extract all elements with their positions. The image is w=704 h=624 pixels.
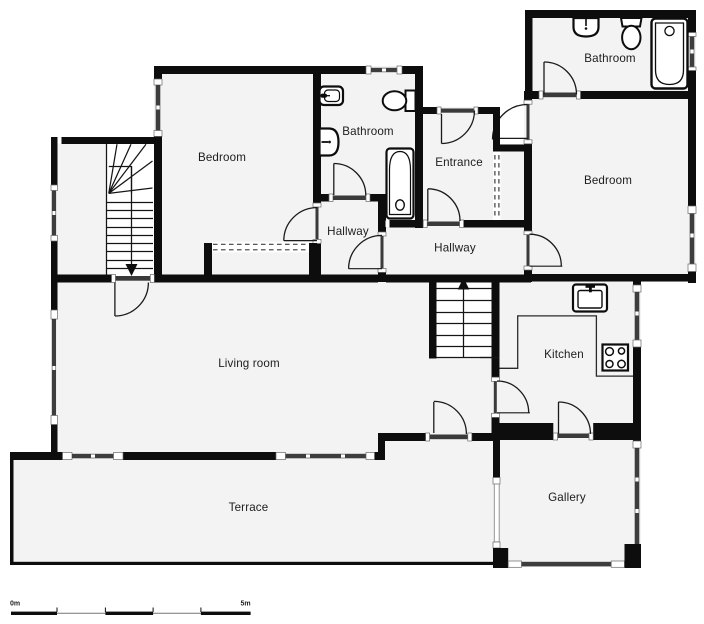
- svg-text:Bedroom: Bedroom: [198, 151, 246, 164]
- svg-text:Entrance: Entrance: [435, 156, 483, 169]
- svg-text:Bathroom: Bathroom: [342, 125, 393, 138]
- svg-text:Hallway: Hallway: [327, 225, 369, 238]
- svg-text:Bathroom: Bathroom: [584, 52, 635, 65]
- svg-text:Kitchen: Kitchen: [544, 348, 584, 361]
- svg-text:Bedroom: Bedroom: [584, 174, 632, 187]
- svg-text:0m: 0m: [10, 601, 20, 608]
- svg-text:Living room: Living room: [218, 357, 280, 370]
- svg-text:Hallway: Hallway: [434, 242, 476, 255]
- svg-text:Terrace: Terrace: [229, 501, 269, 514]
- svg-text:Gallery: Gallery: [548, 491, 586, 504]
- svg-text:5m: 5m: [240, 601, 250, 608]
